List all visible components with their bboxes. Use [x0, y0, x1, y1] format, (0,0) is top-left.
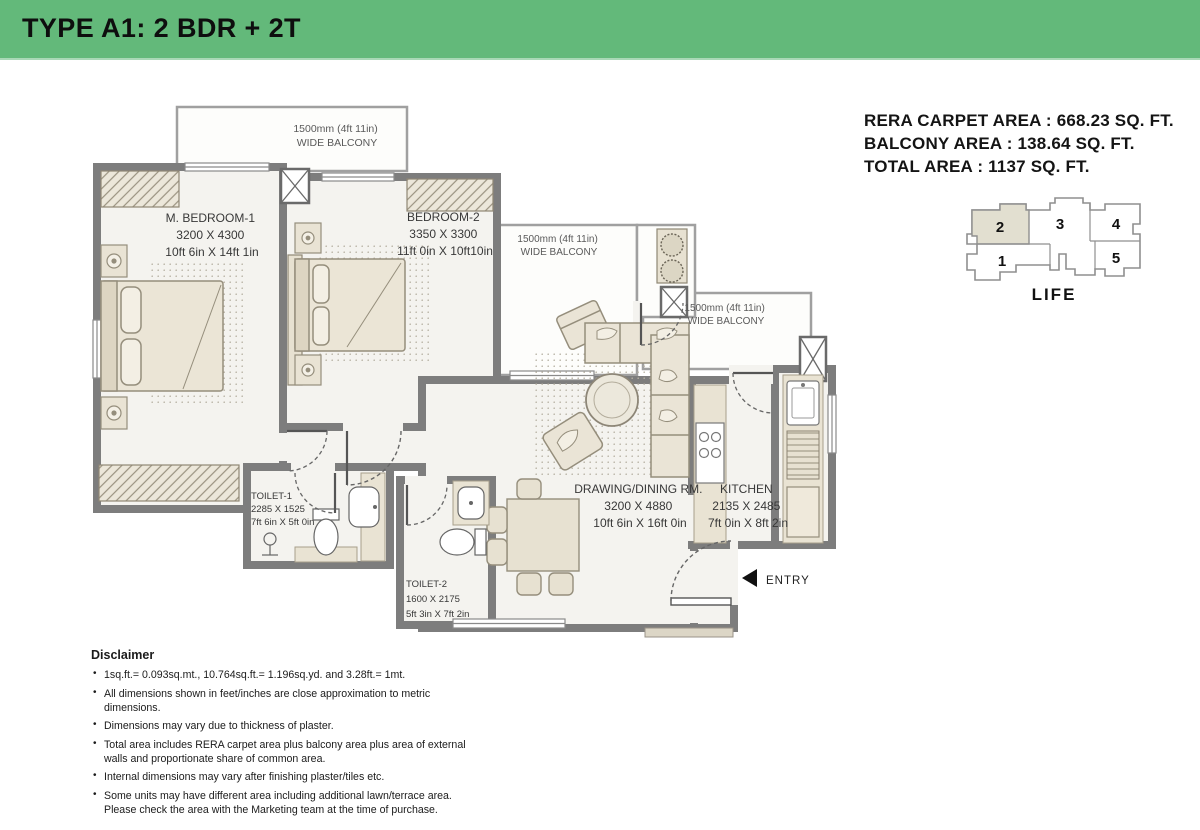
entry-vestibule: [694, 545, 734, 628]
disclaimer-item: Total area includes RERA carpet area plu…: [91, 738, 473, 766]
area-summary: RERA CARPET AREA : 668.23 SQ. FT. BALCON…: [864, 109, 1174, 178]
kitchen-drawers: [787, 431, 819, 479]
entry-label: ENTRY: [766, 575, 810, 587]
keyplan-unit-5: 5: [1112, 250, 1120, 267]
wardrobe-icon: [99, 465, 239, 501]
keyplan-caption: LIFE: [956, 285, 1152, 305]
keyplan-unit-4: 4: [1112, 216, 1121, 233]
room-label-bedroom2: BEDROOM-2 3350 X 3300 11ft 0in X 10ft10i…: [397, 210, 493, 258]
window: [93, 320, 101, 378]
disclaimer-item: Dimensions may vary due to thickness of …: [91, 719, 473, 733]
fridge-icon: [787, 487, 819, 537]
wardrobe-icon: [101, 171, 179, 207]
window: [828, 395, 836, 453]
shaft-box: [661, 287, 687, 317]
washbasin-icon: [453, 481, 489, 525]
floor-plan: 1500mm (4ft 11in) WIDE BALCONY M. BEDROO…: [85, 95, 845, 640]
plant-icon: [657, 229, 687, 283]
disclaimer-heading: Disclaimer: [91, 648, 473, 662]
disclaimer: Disclaimer 1sq.ft.= 0.093sq.mt., 10.764s…: [91, 648, 473, 822]
title-bar: TYPE A1: 2 BDR + 2T: [0, 0, 1200, 60]
hob-icon: [696, 423, 724, 483]
disclaimer-item: 1sq.ft.= 0.093sq.mt., 10.764sq.ft.= 1.19…: [91, 668, 473, 682]
disclaimer-item: All dimensions shown in feet/inches are …: [91, 687, 473, 715]
disclaimer-list: 1sq.ft.= 0.093sq.mt., 10.764sq.ft.= 1.19…: [91, 668, 473, 817]
room-label-master-bedroom: M. BEDROOM-1 3200 X 4300 10ft 6in X 14ft…: [165, 211, 258, 259]
window: [322, 173, 394, 181]
shaft-box: [281, 169, 309, 203]
shaft-box: [800, 337, 826, 381]
keyplan-unit-3: 3: [1056, 216, 1064, 233]
dining-chair-icon: [549, 573, 573, 595]
dining-chair-icon: [487, 539, 507, 565]
dining-chair-icon: [517, 479, 541, 499]
bed-icon: [295, 259, 405, 351]
keyplan-unit-1: 1: [998, 253, 1006, 270]
window: [453, 619, 565, 628]
page-title: TYPE A1: 2 BDR + 2T: [0, 0, 1200, 44]
dining-chair-icon: [517, 573, 541, 595]
wc-icon: [313, 509, 339, 555]
entry-marker: ENTRY: [742, 569, 810, 587]
wardrobe-icon: [407, 179, 493, 211]
window: [185, 163, 269, 171]
rera-carpet-area-line: RERA CARPET AREA : 668.23 SQ. FT.: [864, 109, 1174, 132]
coffee-table-icon: [586, 374, 638, 426]
key-plan: 2 3 4 1 5: [956, 196, 1152, 288]
keyplan-unit-2: 2: [996, 219, 1004, 236]
wc-icon: [440, 529, 486, 555]
entry-threshold: [645, 628, 733, 637]
sink-icon: [787, 381, 819, 425]
balcony-area-line: BALCONY AREA : 138.64 SQ. FT.: [864, 132, 1174, 155]
disclaimer-item: Internal dimensions may vary after finis…: [91, 770, 473, 784]
master-bed-icon: [101, 281, 223, 391]
entry-arrow-icon: [742, 569, 757, 587]
disclaimer-item: Some units may have different area inclu…: [91, 789, 473, 817]
dining-chair-icon: [487, 507, 507, 533]
total-area-line: TOTAL AREA : 1137 SQ. FT.: [864, 155, 1174, 178]
